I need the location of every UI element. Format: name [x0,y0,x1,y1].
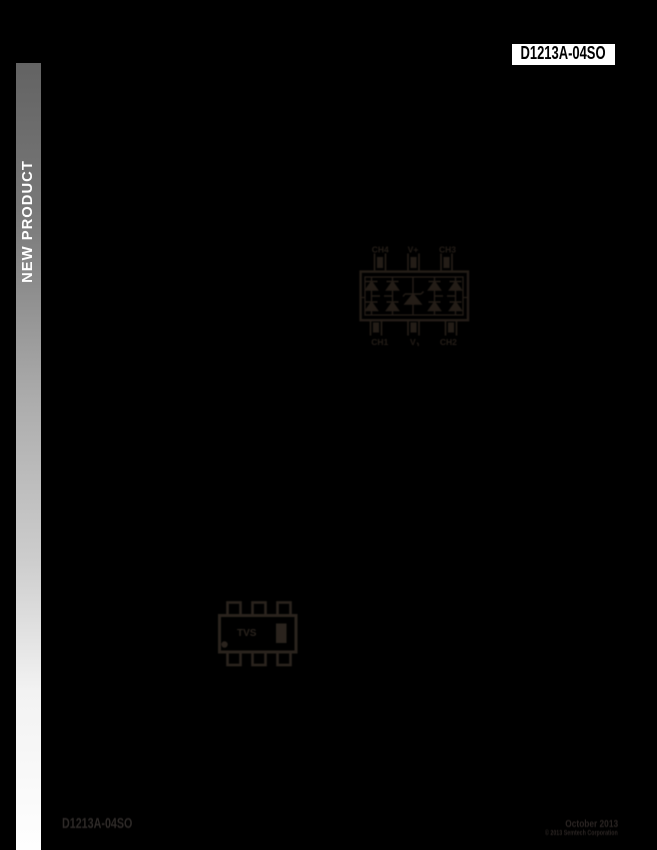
svg-text:CH3: CH3 [439,245,456,255]
svg-text:V+: V+ [408,245,419,255]
svg-text:CH1: CH1 [371,337,388,347]
svg-text:TVS: TVS [237,628,257,639]
svg-text:CH2: CH2 [440,337,457,347]
svg-text:V: V [410,337,416,347]
svg-text:CH4: CH4 [372,245,389,255]
